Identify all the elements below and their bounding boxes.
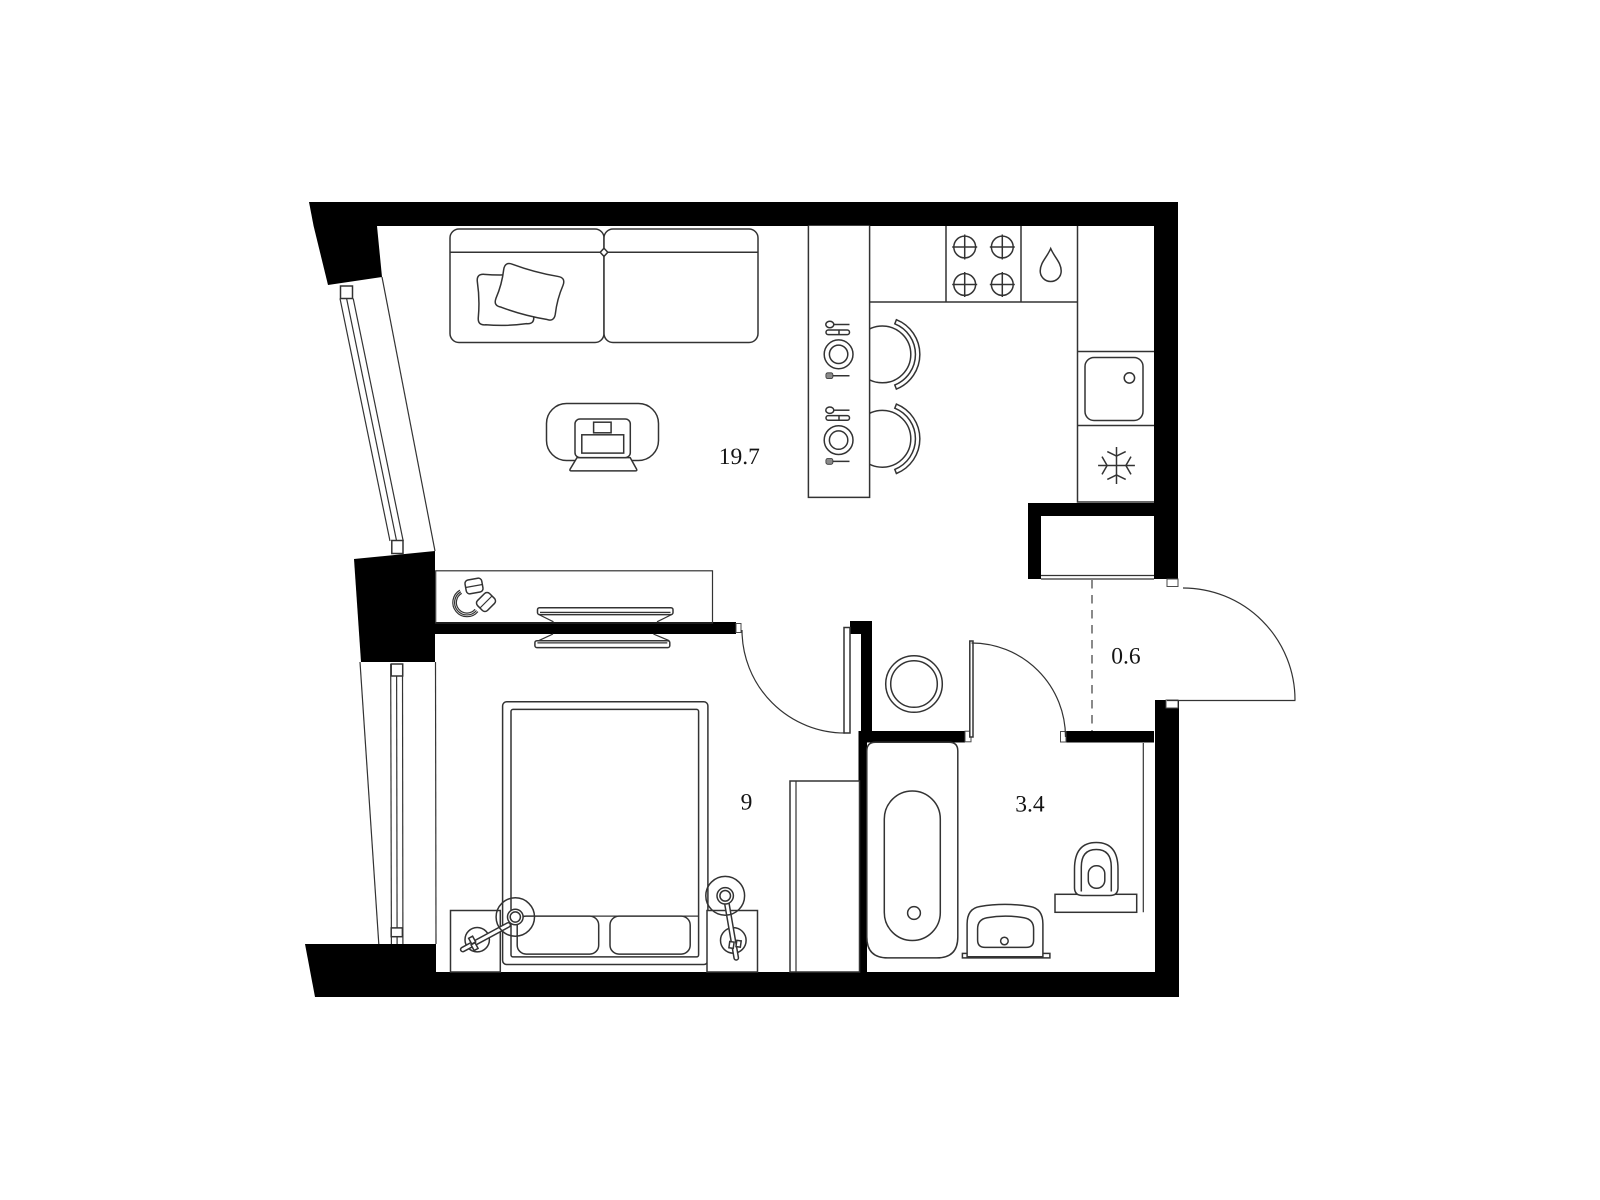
svg-text:3.4: 3.4 bbox=[1015, 791, 1045, 817]
svg-text:19.7: 19.7 bbox=[719, 444, 760, 470]
svg-text:9: 9 bbox=[741, 789, 753, 815]
svg-text:0.6: 0.6 bbox=[1111, 643, 1141, 669]
